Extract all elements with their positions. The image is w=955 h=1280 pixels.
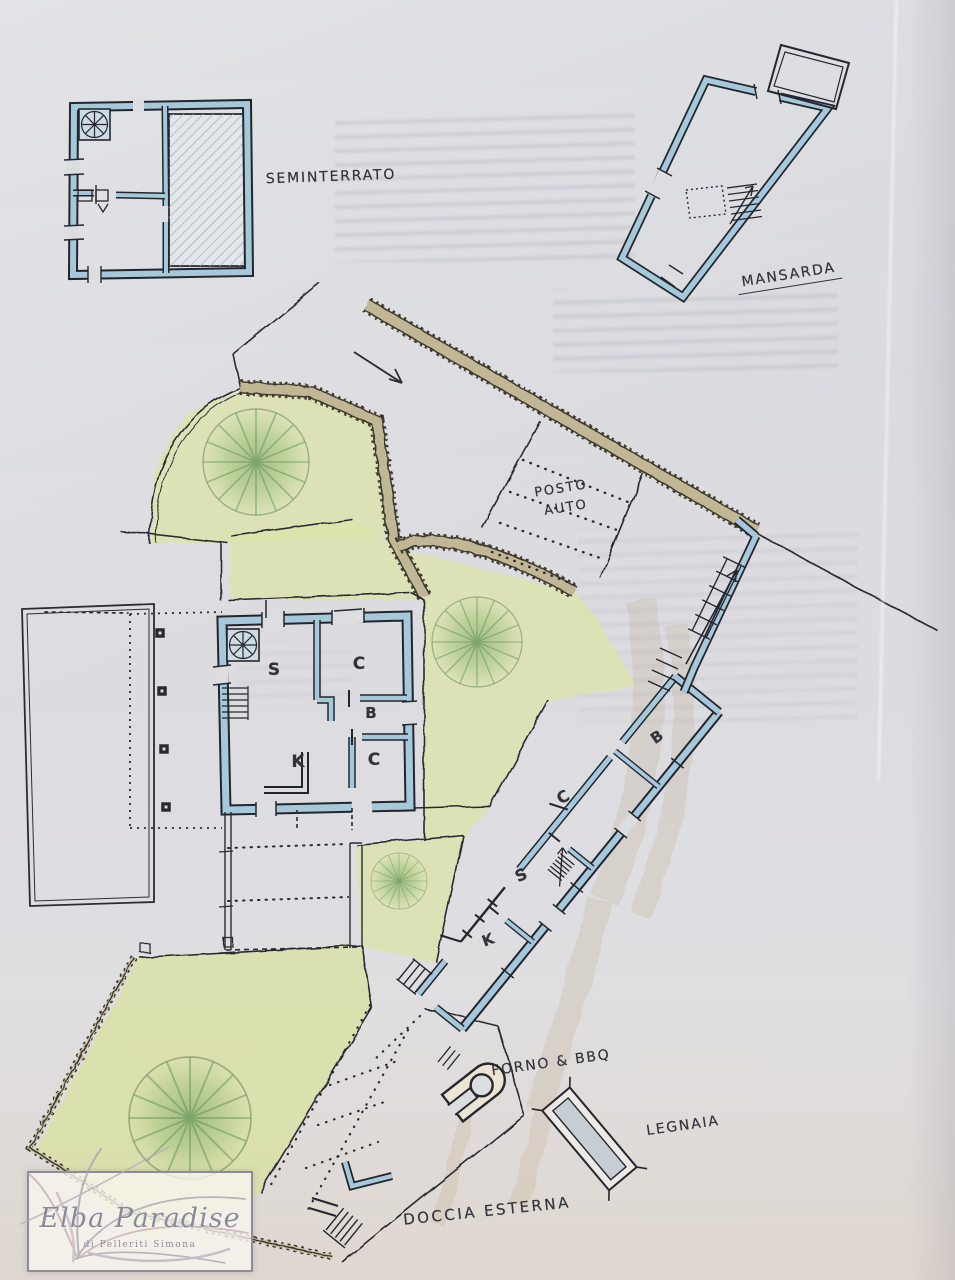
tree-icon: [203, 409, 309, 515]
room-label-s: S: [268, 660, 280, 680]
left-terrace: [22, 604, 154, 906]
outdoor-shower-walls: [309, 1162, 392, 1216]
room-label-k: K: [291, 752, 304, 772]
south-terrace: [219, 810, 362, 953]
tree-icon: [129, 1057, 251, 1179]
room-label-c2: C: [368, 750, 380, 770]
hatched-area: [169, 114, 245, 266]
spiral-staircase-icon: [227, 629, 259, 661]
stairs-icon: [438, 1046, 460, 1069]
watermark-title: Elba Paradise: [39, 1203, 240, 1234]
pergola-area: [130, 612, 222, 828]
main-house-plan: [213, 600, 417, 830]
dotted-opening: [686, 186, 726, 218]
site-plan-drawing: [0, 0, 955, 1280]
watermark-subtitle: di Pelleriti Simona: [84, 1240, 197, 1250]
room-label-b: B: [365, 704, 376, 722]
mansarda-plan: [622, 45, 849, 297]
tree-icon: [432, 597, 522, 687]
agency-watermark: Elba Paradise di Pelleriti Simona: [27, 1171, 253, 1272]
pergola-posts: [156, 629, 170, 811]
seminterrato-plan: [64, 104, 249, 283]
tree-icon: [371, 853, 427, 909]
plan-photo: SEMINTERRATO MANSARDA POSTO AUTO S C B K…: [0, 0, 955, 1280]
spiral-staircase-icon: [79, 109, 110, 140]
retaining-wall-stairs: [648, 520, 756, 692]
room-label-c: C: [353, 654, 365, 674]
entrance-arrow-icon: [354, 352, 402, 383]
